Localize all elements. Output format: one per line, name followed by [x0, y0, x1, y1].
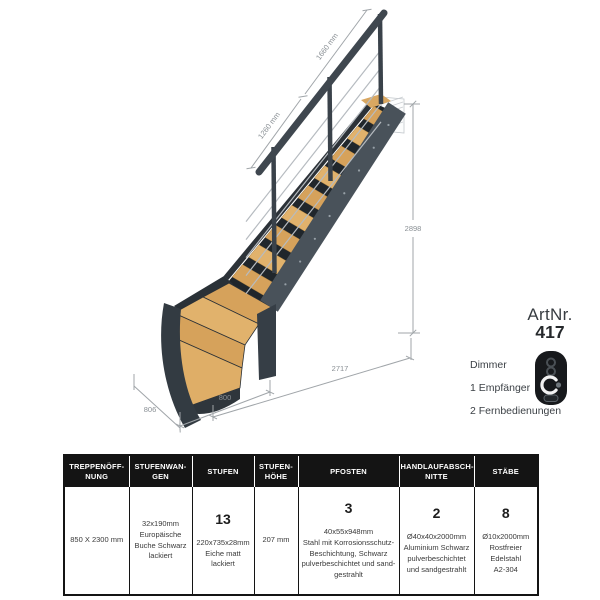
cell-text: 32x190mm Europäische Buche Schwarz lacki… [131, 519, 191, 563]
column-header-staebe: STÄBE [474, 455, 538, 487]
product-sheet: 1660 mm 1260 mm 2898 2717 800 806 ArtNr.… [0, 0, 600, 600]
column-header-treppenoeffnung: TREPPENÖFF- NUNG [64, 455, 129, 487]
cell-text: 850 X 2300 mm [66, 535, 128, 546]
spec-table: TREPPENÖFF- NUNG STUFENWAN- GEN STUFEN S… [63, 454, 539, 596]
dim-run-label: 2717 [332, 364, 349, 373]
column-header-handlaufabschnitte: HANDLAUFABSCH- NITTE [399, 455, 474, 487]
cell-text: 40x55x948mm Stahl mit Korrosionsschutz- … [300, 527, 398, 581]
rivet-dot [343, 192, 345, 194]
column-header-pfosten: PFOSTEN [298, 455, 399, 487]
cell-stufenwangen: 32x190mm Europäische Buche Schwarz lacki… [129, 487, 192, 595]
cell-pfosten: 3 40x55x948mm Stahl mit Korrosionsschutz… [298, 487, 399, 595]
stringer-foot [257, 304, 276, 380]
cell-stufen: 13 220x735x28mm Eiche matt lackiert [192, 487, 254, 595]
column-header-stufenhoehe: STUFEN- HÖHE [254, 455, 298, 487]
column-header-stufenwangen: STUFENWAN- GEN [129, 455, 192, 487]
dim-depth-label: 806 [144, 405, 157, 414]
cell-count: 3 [300, 500, 398, 516]
rivet-dot [299, 260, 301, 262]
remote-control-icon [531, 348, 571, 408]
dim-rail-upper-label: 1660 mm [314, 31, 340, 61]
cell-handlaufabschnitte: 2 Ø40x40x2000mm Aluminium Schwarz pulver… [399, 487, 474, 595]
cell-text: 220x735x28mm Eiche matt lackiert [194, 538, 253, 571]
dim-width-label: 800 [219, 393, 232, 402]
winder-section [161, 276, 273, 428]
cell-count: 2 [401, 505, 473, 521]
cell-stufenhoehe: 207 mm [254, 487, 298, 595]
rivet-dot [328, 215, 330, 217]
dim-rail-lower-label: 1260 mm [256, 110, 282, 140]
spec-table-header-row: TREPPENÖFF- NUNG STUFENWAN- GEN STUFEN S… [64, 455, 538, 487]
cell-count: 13 [194, 511, 253, 527]
cell-text: Ø10x2000mm Rostfreier Edelstahl A2-304 [476, 532, 537, 576]
rivet-dot [358, 169, 360, 171]
spec-table-body-row: 850 X 2300 mm 32x190mm Europäische Buche… [64, 487, 538, 595]
column-header-stufen: STUFEN [192, 455, 254, 487]
artnr-value: 417 [520, 322, 580, 343]
cell-text: 207 mm [256, 535, 297, 546]
cell-staebe: 8 Ø10x2000mm Rostfreier Edelstahl A2-304 [474, 487, 538, 595]
cell-text: Ø40x40x2000mm Aluminium Schwarz pulverbe… [401, 532, 473, 576]
rivet-dot [284, 283, 286, 285]
cell-count: 8 [476, 505, 537, 521]
dim-height-label: 2898 [405, 224, 422, 233]
rivet-dot [373, 147, 375, 149]
cell-treppenoeffnung: 850 X 2300 mm [64, 487, 129, 595]
rivet-dot [314, 238, 316, 240]
rivet-dot [387, 124, 389, 126]
